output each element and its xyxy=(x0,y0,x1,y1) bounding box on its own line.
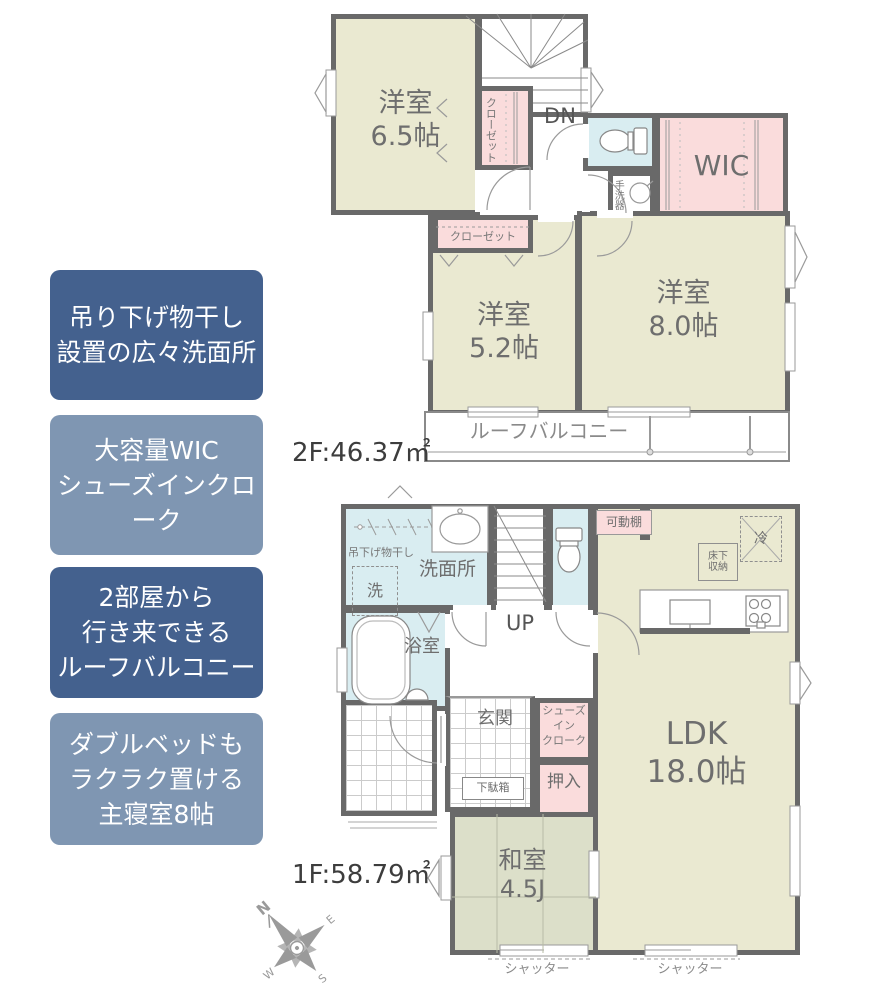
porch-step-lines xyxy=(348,822,437,828)
shutter-label-right: シャッター xyxy=(630,962,750,978)
stairs-up-label: UP xyxy=(498,611,542,637)
movable-shelf-label: 可動棚 xyxy=(596,510,652,535)
room-label-2f-closet-horizontal: クローゼット xyxy=(433,230,533,243)
room-label-2f-closet-vertical: クローゼット xyxy=(484,94,497,166)
compass-w-label: W xyxy=(261,965,278,982)
floorplan-canvas: 吊り下げ物干し 設置の広々洗面所 大容量WIC シューズインクローク 2部屋から… xyxy=(0,0,872,992)
room-label-1f-shoes-in-cloak: シューズ イン クローク xyxy=(537,704,591,749)
floor-area-2f-label: 2F:46.37㎡ xyxy=(292,432,431,469)
fridge-space-label: 冷 xyxy=(740,516,782,562)
bathtub-icon xyxy=(352,616,428,704)
handwash-sink-icon xyxy=(630,181,653,203)
room-label-1f-oshiire: 押入 xyxy=(537,772,591,793)
window-icons xyxy=(326,68,800,956)
shoe-cabinet-label: 下駄箱 xyxy=(462,777,524,800)
room-label-2f-wic: WIC xyxy=(655,149,788,183)
washing-machine-label: 洗 xyxy=(352,566,398,616)
room-label-1f-japanese-room: 和室 4.5J xyxy=(450,846,595,905)
room-label-2f-bedroom-8-0: 洋室 8.0帖 xyxy=(577,278,790,344)
compass-e-label: E xyxy=(324,912,338,926)
kitchen-counter-icon xyxy=(640,590,788,634)
compass-s-label: S xyxy=(316,971,330,985)
underfloor-storage-label: 床下 収納 xyxy=(698,543,738,581)
room-label-2f-bedroom-5-2: 洋室 5.2帖 xyxy=(428,300,580,366)
room-label-1f-ldk: LDK 18.0帖 xyxy=(593,716,800,792)
stairs-up-icon xyxy=(494,506,546,602)
toilet-2f-icon xyxy=(600,128,647,154)
room-label-2f-bedroom-6-5: 洋室 6.5帖 xyxy=(331,88,480,154)
stairs-down-label: DN xyxy=(540,104,580,130)
room-label-1f-entrance: 玄関 xyxy=(455,708,535,730)
room-label-1f-washroom: 洗面所 xyxy=(400,558,495,581)
wall-openings xyxy=(437,124,633,766)
stairs-down-icon xyxy=(466,14,588,103)
floor-area-1f-label: 1F:58.79㎡ xyxy=(292,854,431,891)
room-label-2f-roof-balcony: ルーフバルコニー xyxy=(444,419,654,443)
toilet-1f-icon xyxy=(556,528,582,572)
room-label-1f-bathroom: 浴室 xyxy=(392,636,452,658)
room-label-2f-handwash: 手洗器 xyxy=(611,175,623,215)
laundry-pole-label: 吊下げ物干し xyxy=(348,546,458,559)
shutter-label-left: シャッター xyxy=(477,962,597,978)
compass-n-label: N xyxy=(253,897,274,919)
